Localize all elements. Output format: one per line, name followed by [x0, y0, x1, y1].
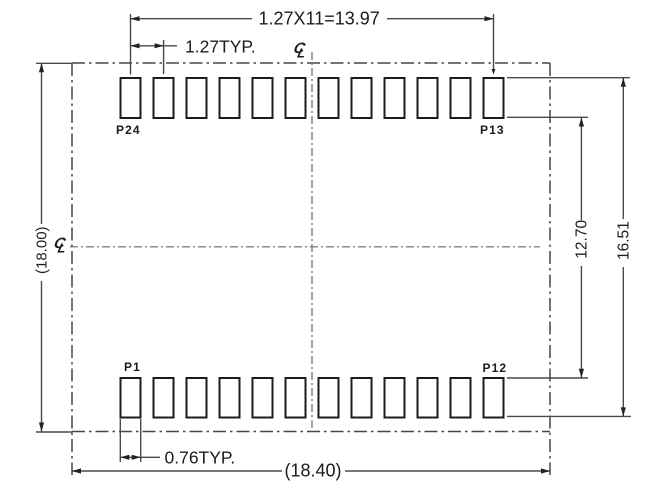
- svg-text:(18.40): (18.40): [285, 461, 342, 481]
- svg-text:1.27TYP.: 1.27TYP.: [185, 36, 256, 56]
- svg-text:P13: P13: [480, 123, 505, 137]
- svg-text:12.70: 12.70: [573, 220, 590, 259]
- svg-text:P1: P1: [124, 360, 141, 374]
- svg-text:1.27X11=13.97: 1.27X11=13.97: [259, 9, 380, 29]
- svg-text:0.76TYP.: 0.76TYP.: [165, 447, 236, 467]
- svg-text:P12: P12: [483, 361, 508, 375]
- svg-text:(18.00): (18.00): [34, 226, 51, 274]
- svg-text:16.51: 16.51: [615, 221, 632, 260]
- svg-text:P24: P24: [116, 123, 141, 137]
